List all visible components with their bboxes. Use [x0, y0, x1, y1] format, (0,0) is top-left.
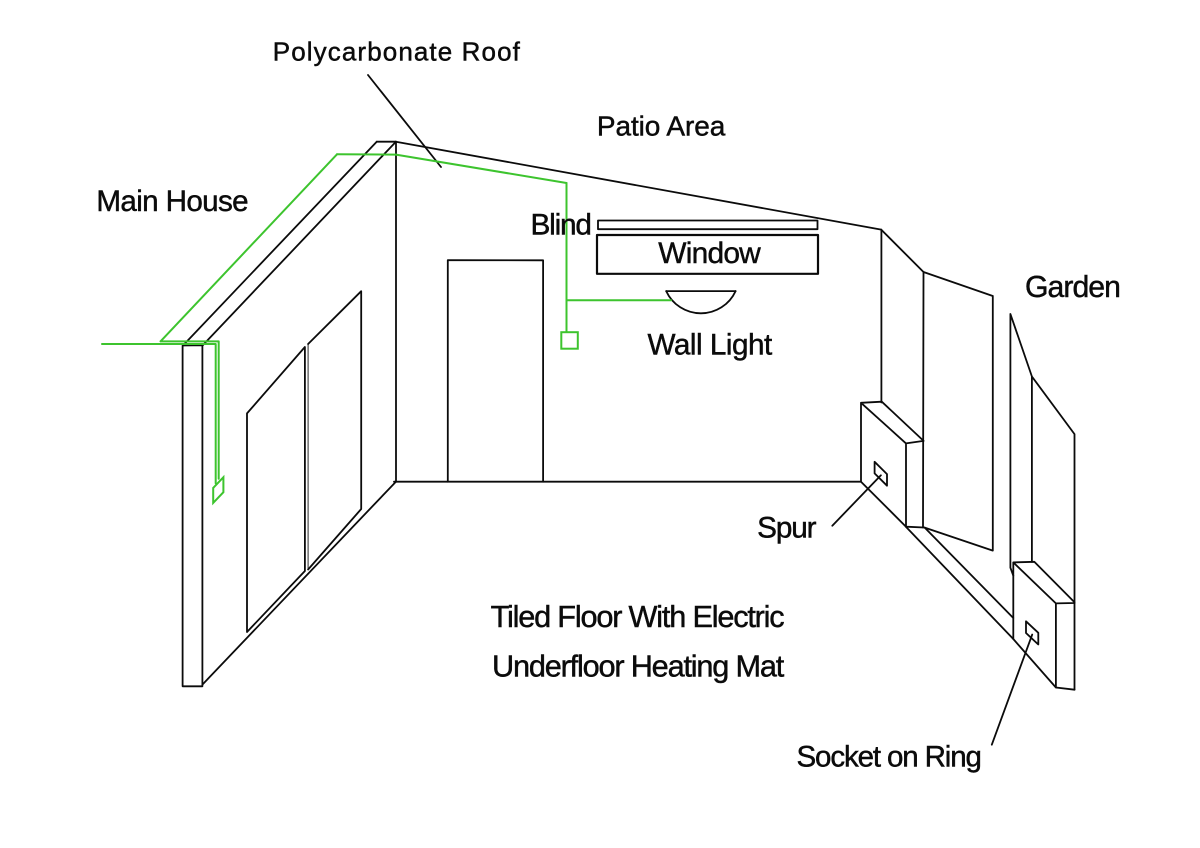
svg-text:Main House: Main House — [96, 185, 248, 218]
svg-text:Wall Light: Wall Light — [648, 328, 773, 361]
svg-text:Polycarbonate Roof: Polycarbonate Roof — [273, 37, 521, 67]
svg-text:Blind: Blind — [531, 208, 591, 241]
svg-text:Garden: Garden — [1025, 271, 1120, 304]
svg-text:Tiled Floor With Electric: Tiled Floor With Electric — [491, 599, 785, 634]
svg-text:Spur: Spur — [757, 511, 817, 544]
svg-text:Patio Area: Patio Area — [597, 111, 726, 142]
svg-text:Window: Window — [658, 237, 761, 270]
svg-text:Socket on Ring: Socket on Ring — [797, 741, 981, 774]
svg-text:Underfloor Heating Mat: Underfloor Heating Mat — [492, 649, 785, 684]
